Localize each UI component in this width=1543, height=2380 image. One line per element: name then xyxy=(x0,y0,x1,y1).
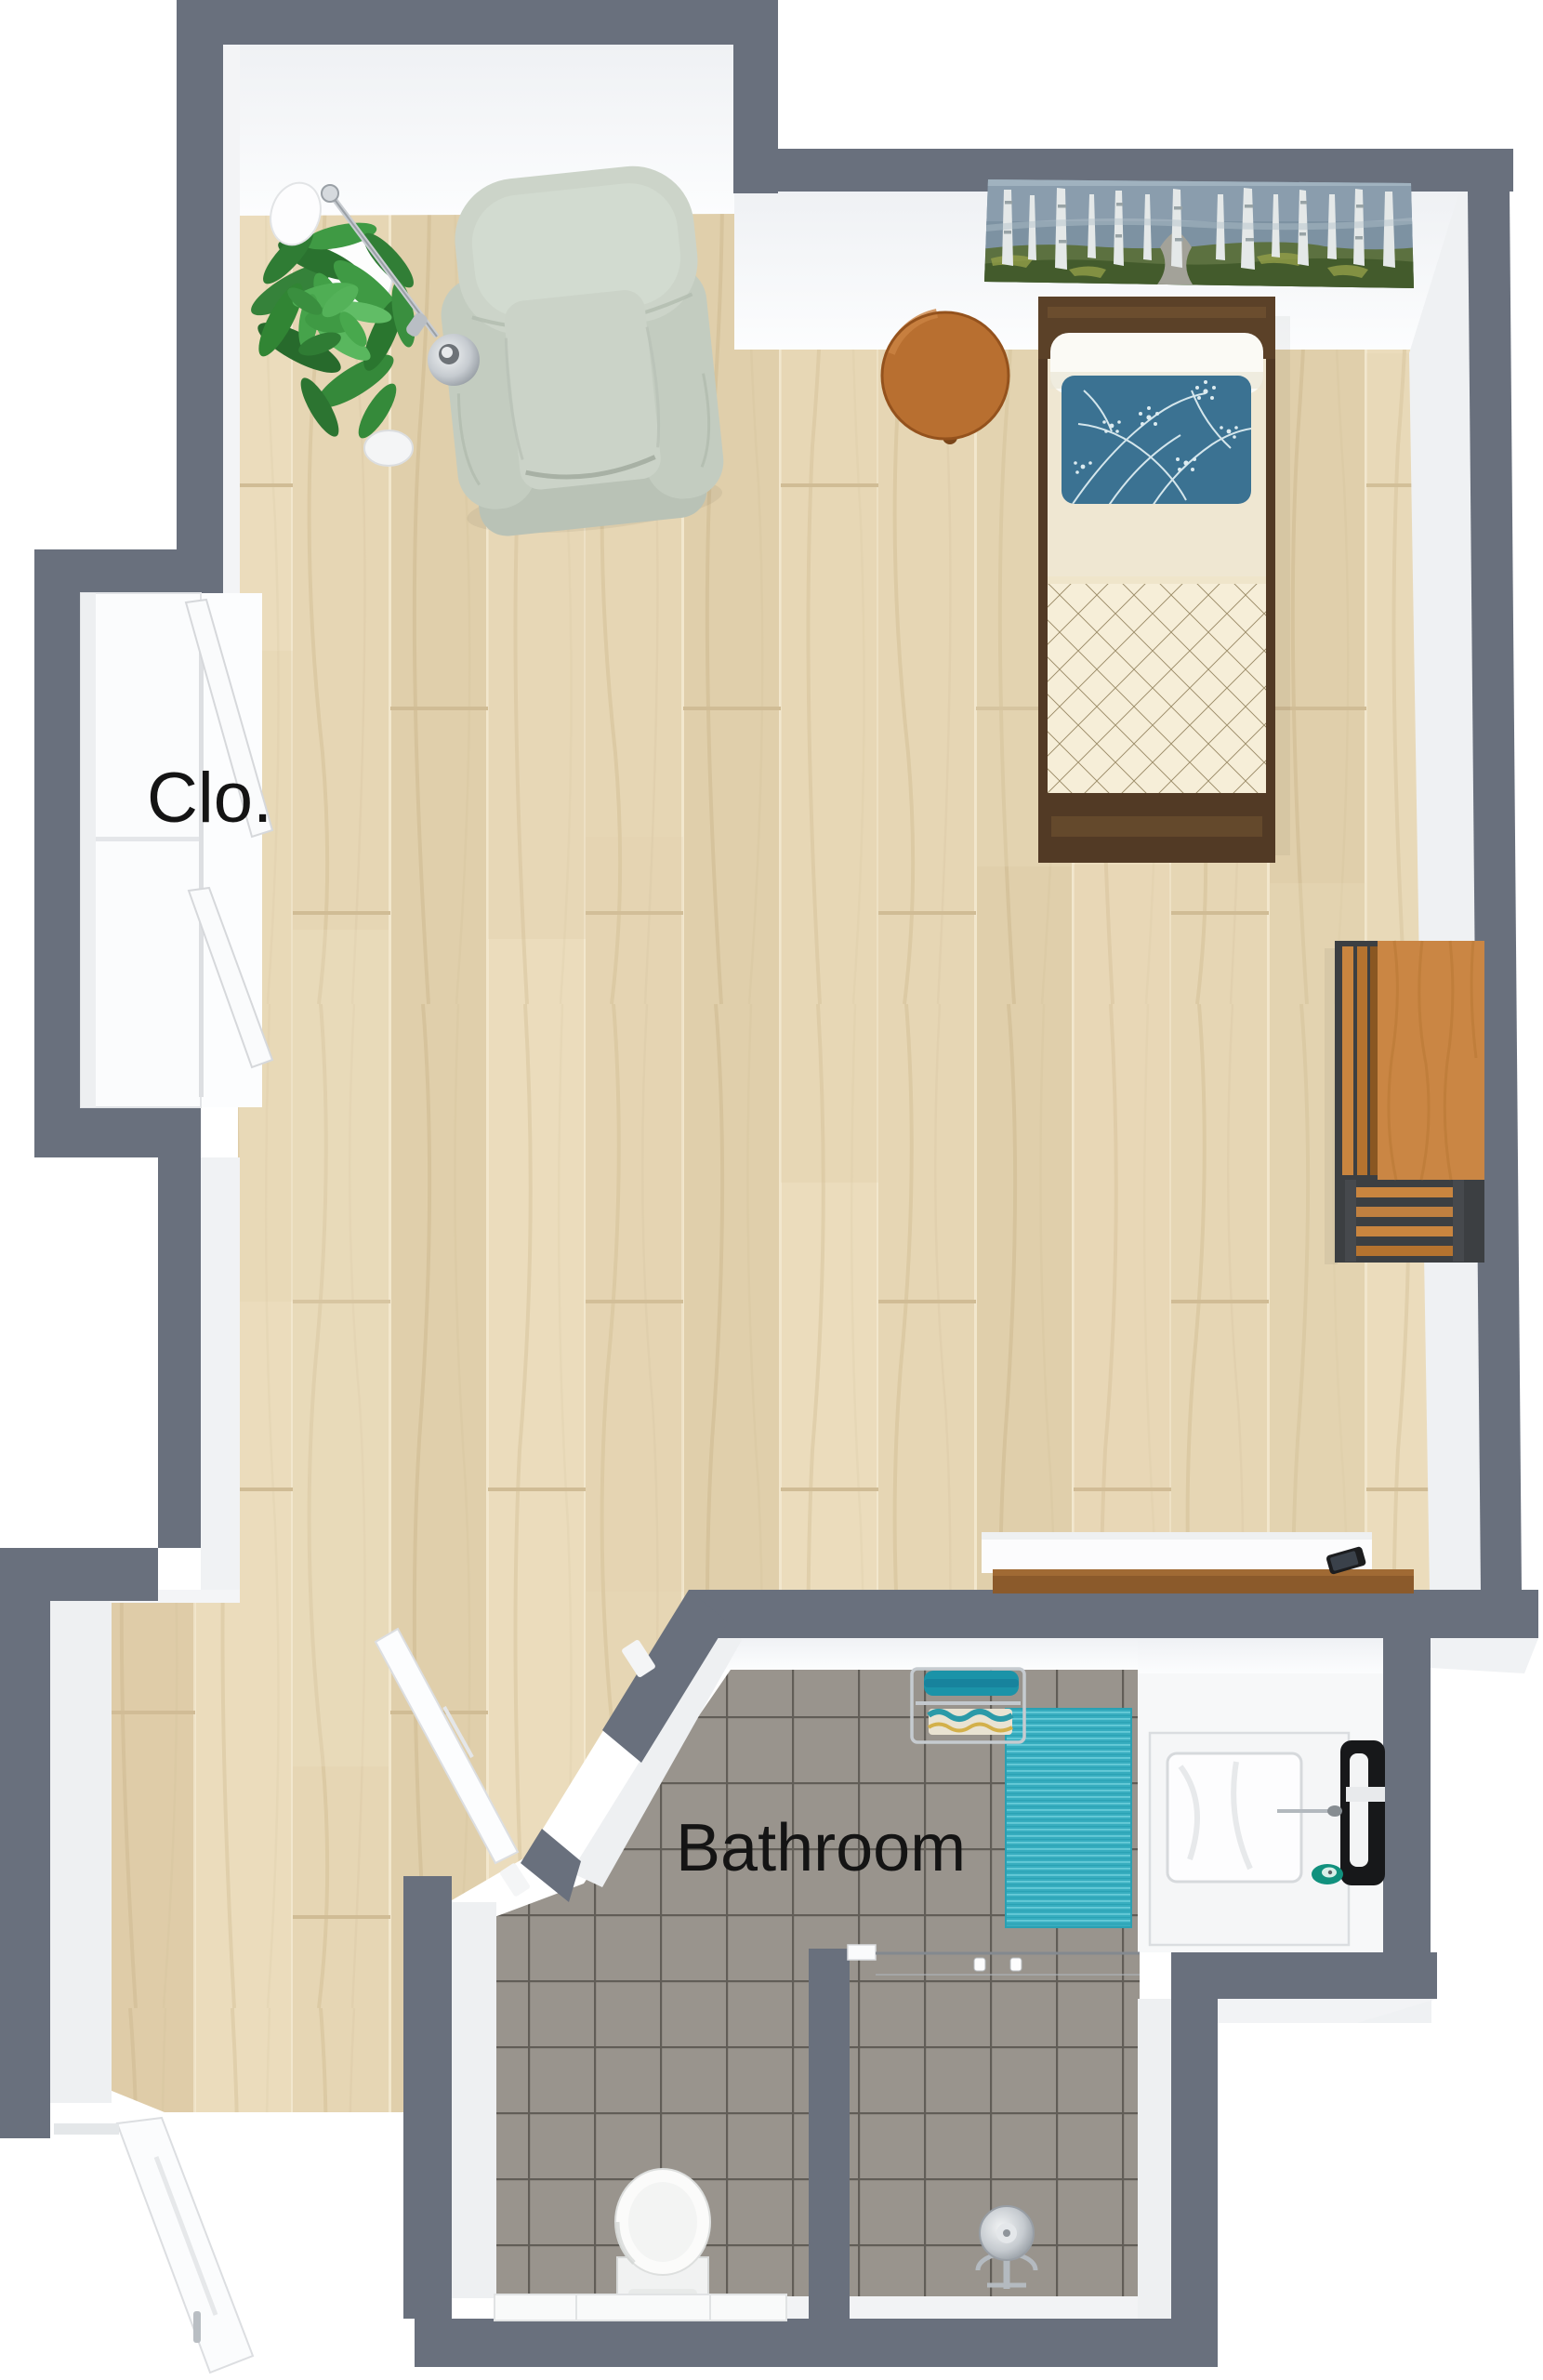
svg-text:Clo.: Clo. xyxy=(147,759,272,838)
svg-text:Bathroom: Bathroom xyxy=(676,1811,966,1885)
